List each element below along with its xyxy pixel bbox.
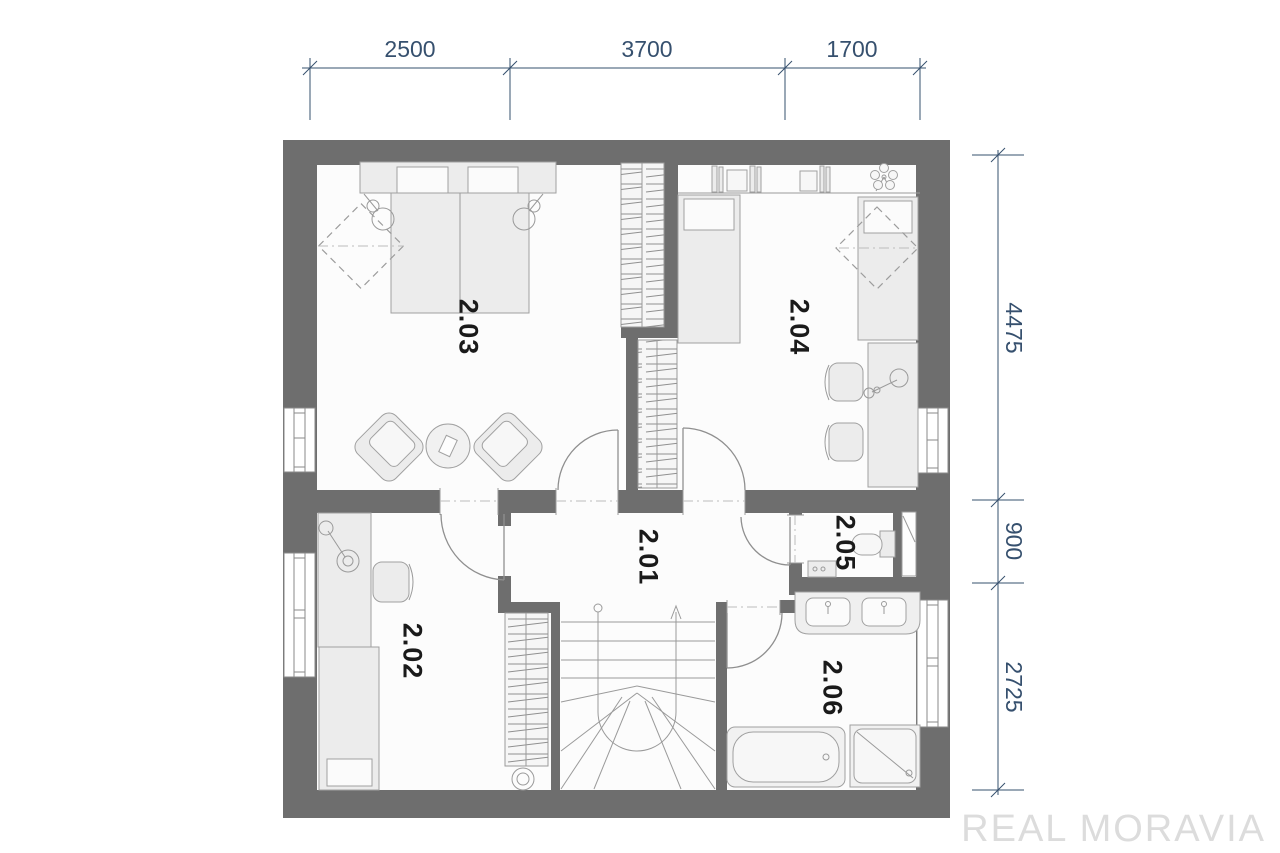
books-icon xyxy=(712,166,761,192)
window-right-lower xyxy=(917,600,948,727)
wall-wc-west-top xyxy=(789,490,802,515)
wall-top xyxy=(283,140,950,165)
wall-mid-horizontal xyxy=(317,490,950,513)
bathtub xyxy=(727,727,845,787)
room-label-bathroom: 2.06 xyxy=(818,660,848,717)
wardrobe xyxy=(505,613,548,766)
opening-room-2-03 xyxy=(556,488,618,515)
pillow xyxy=(468,167,518,193)
room-label-bedroom-left: 2.03 xyxy=(454,299,484,356)
room-label-room: 2.02 xyxy=(398,623,428,680)
dim-top-3: 1700 xyxy=(826,36,877,62)
wall-bottom xyxy=(283,790,950,818)
opening-bath-2-06 xyxy=(727,600,780,615)
wardrobe xyxy=(621,163,664,327)
wardrobe xyxy=(638,340,677,488)
wall-left xyxy=(283,140,317,818)
wall-partition-upper xyxy=(664,158,678,338)
wall-partition-lower xyxy=(626,338,638,490)
dim-top-2: 3700 xyxy=(621,36,672,62)
opening-room-2-02 xyxy=(440,488,498,515)
round-table xyxy=(426,424,470,468)
dim-right-3: 2725 xyxy=(1001,661,1027,712)
dim-right-2: 900 xyxy=(1001,522,1027,560)
dim-right-1: 4475 xyxy=(1001,302,1027,353)
desk-chair xyxy=(825,423,863,461)
wall-stairs-left xyxy=(551,602,560,790)
room-label-bedroom-right: 2.04 xyxy=(785,299,815,356)
headboard xyxy=(360,162,556,193)
watermark-text: REAL MORAVIA xyxy=(961,808,1266,850)
floor-staircase xyxy=(560,602,716,790)
window-left-upper xyxy=(284,408,315,472)
floor-plan-svg: 2.01 2.02 2.03 2.04 2.05 2.06 2500 3700 … xyxy=(0,0,1280,853)
dim-top-1: 2500 xyxy=(384,36,435,62)
desk xyxy=(318,513,371,647)
window-left-lower xyxy=(284,553,315,677)
single-bed xyxy=(319,647,379,790)
vanity-double-sink xyxy=(795,592,920,634)
wall-stairs-right xyxy=(716,602,727,790)
desk xyxy=(868,343,918,487)
window-right-upper xyxy=(917,408,948,473)
opening-room-2-04 xyxy=(683,488,745,515)
wall-wc-bottom xyxy=(789,577,930,592)
room-label-hall: 2.01 xyxy=(634,529,664,586)
desk-chair xyxy=(825,363,863,401)
shaft xyxy=(902,512,916,576)
shower xyxy=(850,725,920,787)
room-label-wc: 2.05 xyxy=(831,515,861,572)
wall-jamb-202-bottom xyxy=(498,576,511,613)
single-bed xyxy=(678,195,740,343)
desk-chair xyxy=(373,562,413,602)
wall-partition-jog xyxy=(621,327,678,338)
shaft-niche xyxy=(902,512,916,576)
pillow xyxy=(397,167,448,193)
